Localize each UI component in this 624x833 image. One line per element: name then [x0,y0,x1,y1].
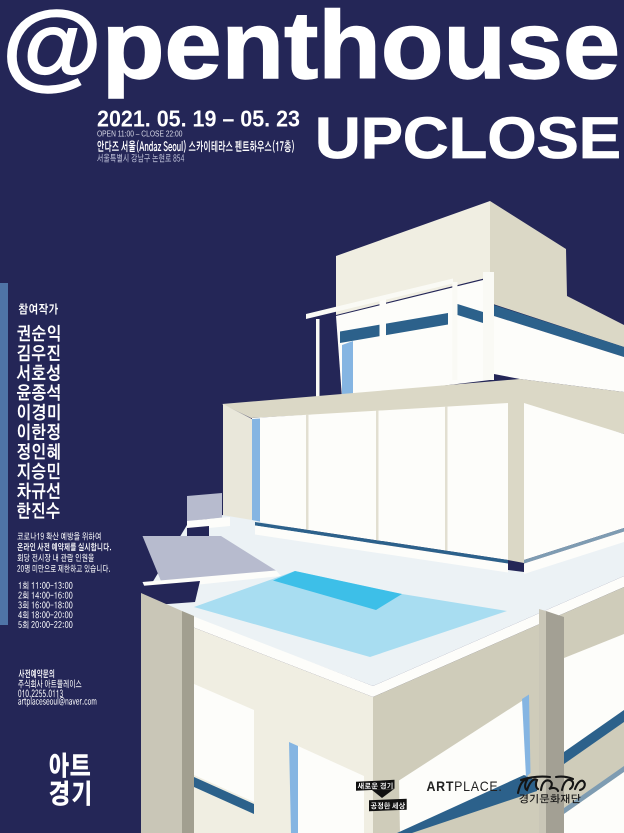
svg-text:OPEN 11:00 – CLOSE 22:00: OPEN 11:00 – CLOSE 22:00 [97,129,183,138]
svg-text:2021. 05. 19 – 05. 23: 2021. 05. 19 – 05. 23 [97,106,300,132]
svg-text:@penthouse: @penthouse [2,0,620,99]
svg-text:UPCLOSE: UPCLOSE [315,106,621,171]
svg-text:ARTPLACE.: ARTPLACE. [427,778,503,794]
